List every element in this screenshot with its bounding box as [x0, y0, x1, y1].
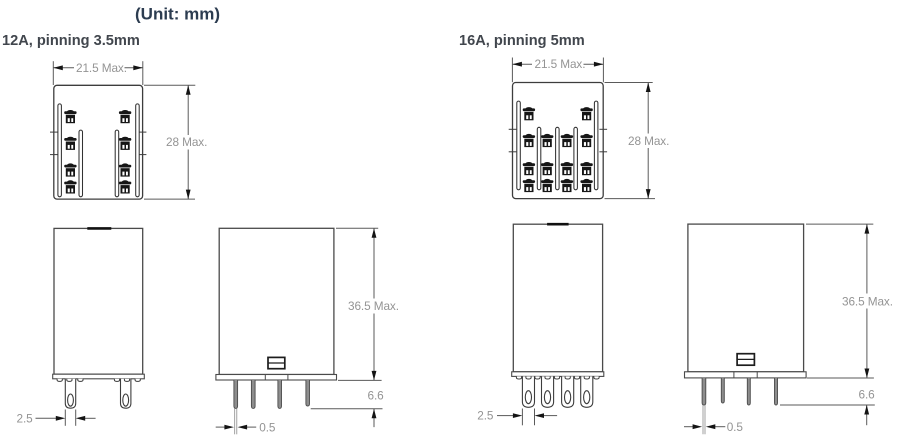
- svg-text:0.5: 0.5: [259, 420, 276, 434]
- svg-text:2.5: 2.5: [17, 411, 34, 425]
- svg-text:28 Max.: 28 Max.: [166, 135, 207, 149]
- svg-text:6.6: 6.6: [368, 388, 385, 402]
- svg-text:36.5 Max.: 36.5 Max.: [842, 294, 893, 308]
- svg-text:36.5 Max.: 36.5 Max.: [348, 299, 399, 313]
- svg-text:21.5 Max.: 21.5 Max.: [535, 57, 586, 71]
- svg-text:0.5: 0.5: [727, 420, 744, 434]
- svg-text:(Unit: mm): (Unit: mm): [135, 5, 220, 24]
- svg-text:2.5: 2.5: [477, 409, 494, 423]
- svg-text:21.5 Max.: 21.5 Max.: [76, 61, 127, 75]
- svg-text:6.6: 6.6: [859, 388, 876, 402]
- svg-text:12A, pinning 3.5mm: 12A, pinning 3.5mm: [2, 33, 140, 49]
- svg-text:16A, pinning 5mm: 16A, pinning 5mm: [459, 33, 585, 49]
- svg-text:28 Max.: 28 Max.: [628, 134, 669, 148]
